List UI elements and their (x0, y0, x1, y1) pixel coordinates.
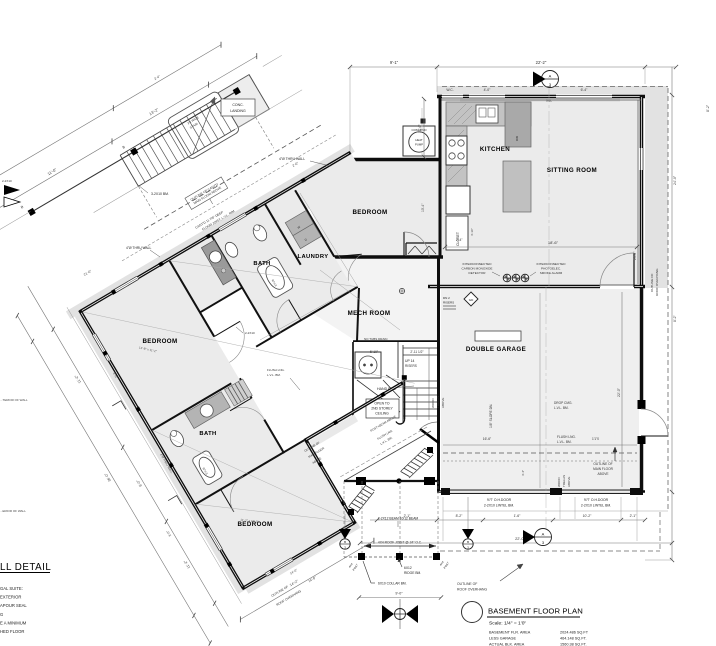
svg-text:9'/7' O.H.DOOR: 9'/7' O.H.DOOR (584, 498, 609, 502)
svg-text:6X12: 6X12 (404, 566, 412, 570)
svg-text:W.C.: W.C. (446, 88, 453, 92)
svg-text:RIDGE BM.: RIDGE BM. (404, 571, 421, 575)
svg-text:PUMP: PUMP (415, 143, 423, 147)
svg-text:LESS GARAGE: LESS GARAGE (489, 637, 516, 641)
svg-text:DROP CMG.: DROP CMG. (554, 401, 572, 405)
svg-text:EXTERIOR: EXTERIOR (0, 595, 21, 600)
svg-text:2'-1": 2'-1" (630, 514, 638, 518)
svg-text:18'-6": 18'-6" (548, 240, 559, 245)
svg-text:4'-0": 4'-0" (484, 88, 492, 92)
svg-text:BASEMENT FLOOR PLAN: BASEMENT FLOOR PLAN (488, 607, 583, 616)
svg-text:A: A (542, 532, 545, 537)
svg-text:MECH ROOM: MECH ROOM (348, 310, 391, 317)
svg-text:24'-0": 24'-0" (673, 175, 677, 185)
svg-text:8'-2": 8'-2" (706, 104, 710, 112)
svg-text:4"Ø THRU WALL: 4"Ø THRU WALL (126, 246, 152, 250)
svg-text:WOOD: WOOD (557, 477, 561, 487)
svg-text:1/8" SLOPE DN.: 1/8" SLOPE DN. (489, 404, 493, 428)
svg-text:ROOF OVERHANG: ROOF OVERHANG (655, 268, 659, 296)
svg-text:Scale: 1/4" = 1'0": Scale: 1/4" = 1'0" (489, 621, 526, 627)
svg-text:8'-2": 8'-2" (456, 514, 464, 518)
svg-text:HED FLOOR: HED FLOOR (0, 629, 24, 634)
svg-text:L.V.L. BM.: L.V.L. BM. (557, 440, 572, 444)
svg-text:L.V.L. BM.: L.V.L. BM. (267, 373, 281, 377)
svg-text:G: G (0, 612, 3, 617)
svg-text:E A MINIMUM: E A MINIMUM (0, 620, 27, 625)
svg-text:2-2X10 LINTEL BM.: 2-2X10 LINTEL BM. (581, 504, 611, 508)
svg-text:LANDING: LANDING (230, 109, 246, 113)
svg-text:ROOF OVERHANG: ROOF OVERHANG (457, 588, 488, 592)
svg-text:BASEMENT FLR. AREA: BASEMENT FLR. AREA (489, 631, 531, 635)
svg-text:L.V.L. BM.: L.V.L. BM. (554, 406, 569, 410)
svg-text:DW: DW (515, 136, 519, 141)
svg-text:2-2X10 LINTEL BM.: 2-2X10 LINTEL BM. (484, 504, 514, 508)
svg-text:5'-10": 5'-10" (370, 350, 378, 354)
svg-text:ACTUAL BLK. AREA: ACTUAL BLK. AREA (489, 643, 525, 646)
svg-text:4"Ø THRU WALL: 4"Ø THRU WALL (279, 157, 305, 161)
svg-text:2'-4": 2'-4" (456, 238, 462, 242)
svg-text:BATH: BATH (253, 261, 270, 267)
svg-text:2-2X10: 2-2X10 (245, 331, 255, 335)
svg-text:10'-2": 10'-2" (583, 514, 592, 518)
svg-text:INTERCONNECTED: INTERCONNECTED (537, 262, 567, 266)
svg-text:464.148 SQ.FT.: 464.148 SQ.FT. (560, 637, 587, 641)
svg-text:2'-11 1/2": 2'-11 1/2" (410, 350, 423, 354)
svg-text:1560.38 SQ.FT.: 1560.38 SQ.FT. (560, 643, 587, 646)
svg-text:1'-6": 1'-6" (514, 514, 522, 518)
svg-text:WOOD: WOOD (431, 398, 435, 408)
svg-text:KITCHEN: KITCHEN (480, 146, 510, 153)
svg-text:2-2X10: 2-2X10 (2, 179, 12, 183)
svg-text:CARBON MONOXIDE: CARBON MONOXIDE (462, 267, 493, 271)
svg-text:10'-4": 10'-4" (421, 203, 425, 212)
svg-text:UP 14: UP 14 (405, 359, 414, 363)
svg-text:CONC.: CONC. (232, 103, 243, 107)
svg-text:2'-1": 2'-1" (404, 514, 412, 518)
svg-text:BEDROOM: BEDROOM (142, 338, 177, 345)
svg-text:OPEN TO: OPEN TO (374, 402, 389, 406)
svg-text:TRELLIS: TRELLIS (562, 475, 566, 487)
svg-text:22'-0": 22'-0" (617, 387, 621, 397)
svg-text:9'-1": 9'-1" (390, 60, 399, 65)
svg-text:MAIN FLOOR: MAIN FLOOR (593, 467, 614, 471)
svg-text:TRELLIS: TRELLIS (436, 396, 440, 408)
svg-text:PHOTOELEC.: PHOTOELEC. (541, 267, 561, 271)
svg-text:DN 2: DN 2 (443, 296, 450, 300)
svg-text:9'-0": 9'-0" (395, 592, 403, 596)
svg-text:DOUBLE GARAGE: DOUBLE GARAGE (466, 346, 526, 353)
svg-text:FLUSH LNG.: FLUSH LNG. (557, 435, 576, 439)
svg-text:9'/7' O.H.DOOR: 9'/7' O.H.DOOR (487, 498, 512, 502)
svg-text:2ND STOREY: 2ND STOREY (371, 407, 393, 411)
svg-text:16'-6": 16'-6" (418, 124, 422, 133)
svg-text:HEAT: HEAT (415, 138, 423, 142)
svg-text:...TERIOR OF WALL: ...TERIOR OF WALL (0, 398, 28, 402)
svg-text:RISERS: RISERS (405, 364, 417, 368)
svg-text:DETECTOR: DETECTOR (469, 271, 487, 275)
svg-text:LL DETAIL: LL DETAIL (0, 562, 51, 573)
svg-text:24'-6": 24'-6" (633, 251, 637, 260)
svg-text:22'-2": 22'-2" (536, 60, 547, 65)
svg-text:6X10 COLLAR BM.: 6X10 COLLAR BM. (378, 582, 407, 586)
svg-text:BEDROOM: BEDROOM (352, 209, 387, 216)
svg-text:GAL SUITE:: GAL SUITE: (0, 586, 23, 591)
svg-text:RISERS: RISERS (443, 301, 454, 305)
svg-text:8'-2": 8'-2" (673, 314, 677, 322)
svg-text:BEDROOM: BEDROOM (237, 521, 272, 528)
svg-text:FLUSH LNG.: FLUSH LNG. (267, 368, 285, 372)
svg-text:B: B (467, 540, 469, 544)
svg-text:LAUNDRY: LAUNDRY (298, 254, 329, 260)
svg-text:4'-4": 4'-4" (521, 470, 525, 476)
svg-text:4X4 ROOF JOIST @ 24" O.C.: 4X4 ROOF JOIST @ 24" O.C. (378, 541, 422, 545)
svg-text:APOUR SEAL: APOUR SEAL (0, 603, 27, 608)
svg-text:SMOKE ALARM: SMOKE ALARM (540, 271, 563, 275)
svg-text:CEILING: CEILING (375, 412, 389, 416)
svg-text:ABOVE: ABOVE (567, 477, 571, 487)
svg-text:4'-10": 4'-10" (470, 228, 474, 236)
svg-text:...ERIOR OF WALL: ...ERIOR OF WALL (0, 509, 26, 513)
svg-text:OUTLINE OF: OUTLINE OF (457, 582, 477, 586)
svg-text:6'-4": 6'-4" (581, 88, 589, 92)
svg-text:ABOVE: ABOVE (441, 398, 445, 408)
svg-text:16'-6": 16'-6" (483, 437, 492, 441)
svg-text:SITTING ROOM: SITTING ROOM (547, 167, 597, 174)
svg-text:2024.486 SQ.FT: 2024.486 SQ.FT (560, 631, 589, 635)
svg-text:B: B (344, 540, 346, 544)
svg-text:OUTLINE OF: OUTLINE OF (593, 462, 612, 466)
svg-text:NO TUBS DRAIN: NO TUBS DRAIN (364, 337, 387, 341)
svg-text:SILL: SILL (546, 99, 553, 103)
svg-text:OUTLINE OF: OUTLINE OF (650, 273, 654, 292)
svg-text:INTERCONNECTED: INTERCONNECTED (463, 262, 493, 266)
svg-text:3-2X10 BM.: 3-2X10 BM. (151, 192, 169, 196)
svg-text:A: A (549, 74, 552, 79)
svg-text:1'1"0: 1'1"0 (592, 437, 599, 441)
svg-text:ABOVE: ABOVE (598, 472, 609, 476)
svg-text:BATH: BATH (199, 431, 216, 437)
